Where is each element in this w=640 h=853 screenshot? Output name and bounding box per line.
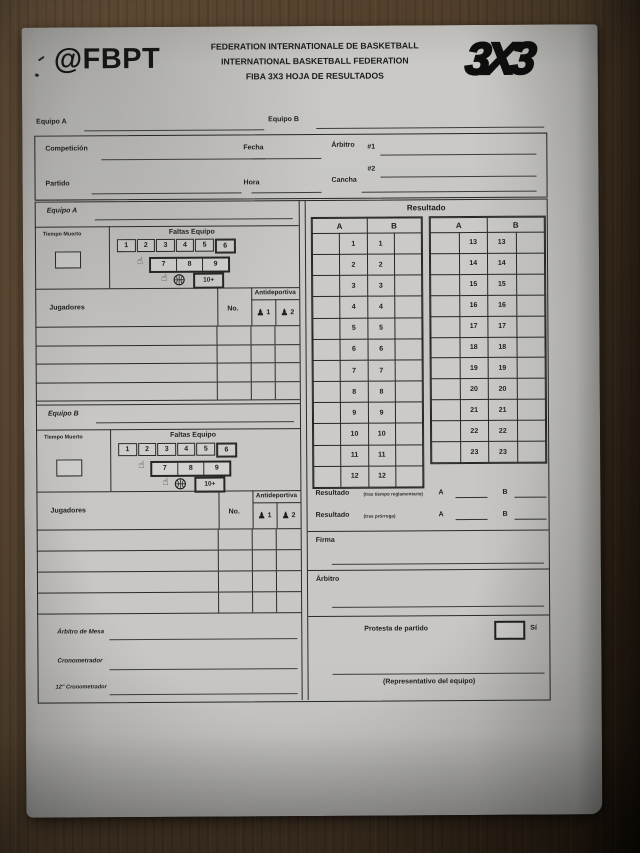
- score-mark-cell: [430, 233, 459, 254]
- anti-foul-1-cell: [253, 550, 277, 570]
- anti-foul-1-cell: [251, 326, 275, 344]
- equipo-a-top-label: Equipo A: [36, 118, 67, 125]
- score-table-13-23: AB13131414151516161717181819192020212122…: [429, 216, 548, 465]
- players-name-header-cell: Jugadores: [35, 288, 218, 327]
- score-number-cell: 13: [459, 232, 488, 253]
- score-number-cell: 22: [460, 421, 489, 442]
- score-mark-cell: [432, 442, 461, 463]
- player-row: [37, 550, 301, 573]
- score-number-cell: 9: [368, 402, 395, 423]
- score-mark-cell: [516, 337, 545, 358]
- anti-foul-2-cell: [276, 363, 300, 381]
- score-number-cell: 15: [459, 274, 488, 295]
- score-number-cell: 5: [367, 318, 394, 339]
- resultado-overtime-note: (tras prórroga): [364, 513, 396, 518]
- player-rows-a: [35, 326, 299, 402]
- score-number-cell: 2: [367, 254, 394, 275]
- score-number-cell: 4: [340, 297, 367, 318]
- anti-foul-1-cell: [252, 382, 276, 400]
- result-a-regulation-line: [455, 497, 487, 498]
- fbpt-logo-text: @FBPT: [54, 43, 161, 77]
- team-fouls-1-6-a: 123456: [117, 238, 237, 257]
- antideportiva-2-cell-b: ♟2: [276, 502, 300, 528]
- score-mark-cell: [394, 296, 421, 317]
- score-mark-cell: [313, 381, 340, 402]
- score-mark-cell: [431, 337, 460, 358]
- pen-mark: [34, 73, 39, 77]
- equipo-a-section-label: Equipo A: [47, 207, 78, 214]
- score-mark-cell: [431, 379, 460, 400]
- score-number-cell: 8: [341, 381, 368, 402]
- partido-line: [92, 192, 242, 194]
- team-foul-box: 1: [117, 239, 136, 252]
- right-column: Resultado AB1122334455667788991010111112…: [305, 199, 550, 700]
- score-number-cell: 10: [341, 424, 368, 445]
- team-foul-box: 4: [177, 443, 196, 456]
- score-mark-cell: [516, 253, 545, 274]
- score-mark-cell: [516, 232, 545, 253]
- divider: [36, 403, 300, 406]
- anti-foul-1-cell: [253, 592, 277, 612]
- score-col-header: B: [487, 217, 544, 232]
- arbitro-de-mesa-line: [109, 638, 297, 640]
- score-number-cell: 10: [368, 423, 395, 444]
- score-col-header: A: [312, 218, 367, 233]
- score-number-cell: 13: [487, 232, 516, 253]
- score-col-header: B: [367, 218, 422, 233]
- score-mark-cell: [396, 466, 423, 487]
- score-mark-cell: [314, 424, 341, 445]
- anti-foul-2-cell: [277, 592, 301, 612]
- cronometrador-label: Cronometrador: [57, 657, 102, 664]
- player-number-cell: [218, 363, 252, 381]
- team-foul-box: 3: [156, 239, 175, 252]
- player-number-cell: [217, 326, 251, 344]
- score-number-cell: 17: [488, 316, 517, 337]
- faltas-title-a: Faltas Equipo: [169, 229, 215, 236]
- player-row: [36, 345, 300, 365]
- competicion-label: Competición: [45, 145, 87, 152]
- jugadores-label-a: Jugadores: [49, 304, 84, 311]
- score-number-cell: 18: [488, 337, 517, 358]
- anti2-label-b: 2: [292, 512, 296, 519]
- score-mark-cell: [431, 316, 460, 337]
- competicion-line: [101, 158, 265, 160]
- player-name-cell: [37, 551, 219, 572]
- team-foul-box: 1: [118, 443, 137, 456]
- referee1-label: #1: [367, 144, 375, 151]
- score-mark-cell: [430, 254, 459, 275]
- player-row: [37, 529, 301, 552]
- score-number-cell: 23: [460, 441, 489, 462]
- fecha-label: Fecha: [243, 144, 263, 151]
- cancha-line: [362, 191, 537, 193]
- score-number-cell: 4: [367, 296, 394, 317]
- score-mark-cell: [312, 233, 339, 254]
- faltas-title-b: Faltas Equipo: [170, 432, 216, 439]
- team-foul-box: 9: [203, 259, 228, 271]
- player-row: [36, 382, 300, 402]
- player-number-cell: [219, 550, 253, 570]
- players-number-header-cell: No.: [217, 287, 252, 325]
- player-row: [36, 363, 300, 383]
- result-a-label: A: [438, 489, 443, 496]
- equipo-a-section-line: [95, 218, 293, 220]
- federation-title: FEDERATION INTERNATIONALE DE BASKETBALL …: [150, 38, 480, 85]
- timeout-box-b: [56, 459, 82, 476]
- team-foul-box: 2: [138, 443, 157, 456]
- score-mark-cell: [312, 254, 339, 275]
- team-foul-box: 8: [177, 259, 203, 271]
- player-row: [35, 326, 299, 346]
- basketball-icon: [173, 274, 185, 286]
- score-mark-cell: [313, 318, 340, 339]
- protest-checkbox: [494, 621, 525, 640]
- team-fouls-7-9-a: 789: [149, 256, 230, 272]
- score-number-cell: 19: [460, 358, 489, 379]
- free-throw-hand-icon: ☝: [162, 478, 168, 488]
- score-mark-cell: [314, 445, 341, 466]
- score-number-cell: 6: [340, 339, 367, 360]
- player-row: [37, 592, 301, 615]
- result-a-overtime-line: [456, 519, 488, 520]
- referee2-line: [381, 176, 537, 178]
- score-mark-cell: [395, 360, 422, 381]
- equipo-b-section-label: Equipo B: [48, 410, 79, 417]
- players-header-a: Jugadores No. Antideportiva ♟1 ♟2: [35, 287, 299, 327]
- referee2-label: #2: [367, 166, 375, 173]
- arbitro-de-mesa-label: Árbitro de Mesa: [57, 628, 104, 635]
- pen-mark: [38, 56, 45, 62]
- result-b-regulation-line: [514, 497, 546, 498]
- score-number-cell: 3: [340, 275, 367, 296]
- score-mark-cell: [517, 420, 546, 441]
- score-number-cell: 20: [460, 379, 489, 400]
- unsportsmanlike-foul-icon: ♟: [256, 308, 264, 317]
- score-number-cell: 20: [488, 379, 517, 400]
- score-number-cell: 11: [368, 445, 395, 466]
- score-table-1-12: AB112233445566778899101011111212: [311, 216, 425, 489]
- equipo-a-top-line: [84, 129, 264, 131]
- hora-line: [252, 192, 322, 193]
- players-name-header-cell: Jugadores: [36, 491, 219, 530]
- score-mark-cell: [394, 233, 421, 254]
- anti1-label-b: 1: [268, 512, 272, 519]
- divider: [308, 569, 549, 571]
- score-number-cell: 1: [367, 233, 394, 254]
- no-label-a: No.: [227, 305, 238, 312]
- result-b-overtime-line: [515, 519, 547, 520]
- score-number-cell: 16: [459, 295, 488, 316]
- representative-label: (Representativo del equipo): [309, 678, 550, 686]
- no-label-b: No.: [229, 508, 240, 515]
- score-mark-cell: [395, 381, 422, 402]
- score-number-cell: 7: [340, 360, 367, 381]
- anti-foul-1-cell: [253, 571, 277, 591]
- score-number-cell: 3: [367, 275, 394, 296]
- arbitro-label: Árbitro: [331, 142, 354, 149]
- score-number-cell: 21: [460, 400, 489, 421]
- team-foul-box: 7: [152, 463, 178, 475]
- score-number-cell: 9: [341, 402, 368, 423]
- score-number-cell: 2: [340, 254, 367, 275]
- players-header-b: Jugadores No. Antideportiva ♟1 ♟2: [36, 490, 300, 530]
- score-number-cell: 21: [488, 399, 517, 420]
- divider: [35, 225, 299, 228]
- player-row: [37, 571, 301, 594]
- divider: [308, 530, 549, 532]
- free-throw-hand-icon: ☝: [161, 274, 167, 284]
- score-number-cell: 12: [341, 466, 368, 487]
- divider: [110, 429, 111, 491]
- left-column: Equipo A Tiempo Muerto Faltas Equipo 123…: [35, 200, 303, 702]
- team-fouls-7-9-b: 789: [150, 460, 231, 476]
- score-mark-cell: [431, 295, 460, 316]
- antideportiva-header-a: Antideportiva ♟1 ♟2: [251, 287, 299, 325]
- player-number-cell: [219, 592, 253, 612]
- antideportiva-1-cell-a: ♟1: [251, 299, 276, 325]
- arbitro-signature-label: Árbitro: [316, 576, 339, 583]
- score-mark-cell: [394, 275, 421, 296]
- firma-signature-line: [332, 563, 544, 565]
- team-fouls-1-6-b: 123456: [118, 442, 238, 461]
- team-foul-box: 9: [204, 463, 229, 475]
- score-number-cell: 6: [367, 339, 394, 360]
- crono-12s-label: 12" Cronometrador: [56, 684, 107, 690]
- score-mark-cell: [394, 254, 421, 275]
- score-mark-cell: [516, 274, 545, 295]
- player-number-cell: [218, 345, 252, 363]
- team-foul-box: 5: [197, 443, 216, 456]
- result-b-label: B: [503, 511, 508, 518]
- score-number-cell: 14: [487, 253, 516, 274]
- antideportiva-header-b: Antideportiva ♟1 ♟2: [252, 490, 300, 528]
- anti-foul-2-cell: [277, 571, 301, 591]
- score-mark-cell: [431, 358, 460, 379]
- player-number-cell: [219, 529, 253, 549]
- score-number-cell: 7: [368, 360, 395, 381]
- team-foul-box: 4: [176, 239, 195, 252]
- score-mark-cell: [431, 400, 460, 421]
- score-mark-cell: [395, 339, 422, 360]
- firma-label: Firma: [316, 537, 335, 544]
- representative-signature-line: [333, 673, 545, 675]
- fecha-line: [251, 158, 321, 159]
- unsportsmanlike-foul-icon: ♟: [280, 308, 288, 317]
- score-mark-cell: [314, 466, 341, 487]
- anti-foul-2-cell: [276, 345, 300, 363]
- equipo-b-top-line: [316, 127, 544, 129]
- equipo-b-top-label: Equipo B: [268, 116, 299, 123]
- divider: [109, 226, 110, 288]
- score-mark-cell: [517, 441, 546, 462]
- score-mark-cell: [395, 402, 422, 423]
- timeout-box-a: [55, 251, 81, 268]
- divider: [308, 615, 549, 617]
- players-number-header-cell: No.: [218, 490, 253, 528]
- federation-title-line3: FIBA 3X3 HOJA DE RESULTADOS: [150, 68, 480, 85]
- score-mark-cell: [517, 399, 546, 420]
- jugadores-label-b: Jugadores: [51, 507, 86, 514]
- fiba-3x3-logo: 3X3: [463, 33, 533, 85]
- score-number-cell: 8: [368, 381, 395, 402]
- score-number-cell: 5: [340, 318, 367, 339]
- player-name-cell: [37, 593, 219, 614]
- hora-label: Hora: [244, 179, 260, 186]
- score-number-cell: 19: [488, 358, 517, 379]
- score-mark-cell: [313, 360, 340, 381]
- unsportsmanlike-foul-icon: ♟: [258, 511, 266, 520]
- divider: [36, 428, 300, 431]
- resultado-regulation-label: Resultado: [315, 490, 349, 497]
- team-foul-box: 7: [151, 259, 177, 271]
- team-fouls-10plus-a: 10+: [193, 273, 224, 289]
- score-number-cell: 23: [489, 441, 518, 462]
- resultado-title: Resultado: [306, 203, 547, 213]
- anti-foul-2-cell: [277, 529, 301, 549]
- crono-12s-line: [110, 693, 298, 695]
- player-name-cell: [37, 530, 219, 551]
- player-name-cell: [36, 345, 218, 364]
- resultado-regulation-note: (tras tiempo reglamentario): [363, 491, 423, 496]
- score-mark-cell: [313, 276, 340, 297]
- score-mark-cell: [516, 316, 545, 337]
- arbitro-signature-line: [332, 606, 544, 608]
- result-a-label: A: [439, 511, 444, 518]
- tiempo-muerto-label-b: Tiempo Muerto: [44, 434, 83, 440]
- player-name-cell: [36, 364, 218, 383]
- score-number-cell: 22: [489, 420, 518, 441]
- equipo-b-section-line: [96, 421, 294, 423]
- score-mark-cell: [313, 403, 340, 424]
- result-b-label: B: [502, 489, 507, 496]
- tiempo-muerto-label-a: Tiempo Muerto: [43, 231, 82, 237]
- team-foul-box: 6: [216, 442, 237, 457]
- anti-foul-1-cell: [253, 529, 277, 549]
- team-foul-box: 6: [215, 238, 236, 253]
- score-number-cell: 11: [341, 445, 368, 466]
- score-number-cell: 17: [459, 316, 488, 337]
- player-number-cell: [218, 382, 252, 400]
- anti2-label-a: 2: [290, 309, 294, 316]
- score-number-cell: 16: [488, 295, 517, 316]
- score-number-cell: 1: [340, 233, 367, 254]
- player-rows-b: [37, 529, 302, 615]
- score-mark-cell: [431, 274, 460, 295]
- score-mark-cell: [395, 444, 422, 465]
- score-mark-cell: [517, 358, 546, 379]
- unsportsmanlike-foul-icon: ♟: [282, 511, 290, 520]
- team-foul-box: 2: [136, 239, 155, 252]
- score-col-header: A: [430, 217, 487, 232]
- anti-foul-2-cell: [276, 382, 300, 400]
- score-number-cell: 15: [488, 274, 517, 295]
- free-throw-hand-icon: ☝: [137, 257, 143, 267]
- referee1-line: [380, 154, 536, 156]
- score-number-cell: 12: [368, 466, 395, 487]
- partido-label: Partido: [46, 180, 70, 187]
- player-name-cell: [37, 572, 219, 593]
- score-number-cell: 14: [459, 253, 488, 274]
- anti1-label-a: 1: [266, 309, 270, 316]
- team-foul-box: 8: [178, 463, 204, 475]
- score-mark-cell: [313, 297, 340, 318]
- score-mark-cell: [516, 295, 545, 316]
- score-mark-cell: [432, 421, 461, 442]
- resultado-overtime-label: Resultado: [316, 512, 350, 519]
- team-foul-box: 3: [157, 443, 176, 456]
- score-mark-cell: [395, 423, 422, 444]
- score-mark-cell: [395, 317, 422, 338]
- score-number-cell: 18: [459, 337, 488, 358]
- cronometrador-line: [110, 668, 298, 670]
- antideportiva-2-cell-a: ♟2: [275, 299, 299, 325]
- anti-foul-1-cell: [252, 345, 276, 363]
- protesta-label: Protesta de partido: [364, 625, 428, 632]
- antideportiva-1-cell-b: ♟1: [252, 502, 277, 528]
- protest-si-label: Sí: [530, 625, 537, 632]
- score-mark-cell: [517, 378, 546, 399]
- match-info-box: Competición Fecha Árbitro #1 #2 Partido …: [34, 133, 547, 201]
- free-throw-hand-icon: ☝: [138, 461, 144, 471]
- player-name-cell: [36, 382, 218, 401]
- player-name-cell: [35, 327, 217, 346]
- basketball-icon: [174, 478, 186, 490]
- cancha-label: Cancha: [332, 177, 357, 184]
- anti-foul-2-cell: [275, 326, 299, 344]
- anti-foul-2-cell: [277, 550, 301, 570]
- score-mark-cell: [313, 339, 340, 360]
- anti-foul-1-cell: [252, 363, 276, 381]
- scoresheet-paper: @FBPT FEDERATION INTERNATIONALE DE BASKE…: [22, 24, 603, 818]
- team-foul-box: 5: [195, 239, 214, 252]
- player-number-cell: [219, 571, 253, 591]
